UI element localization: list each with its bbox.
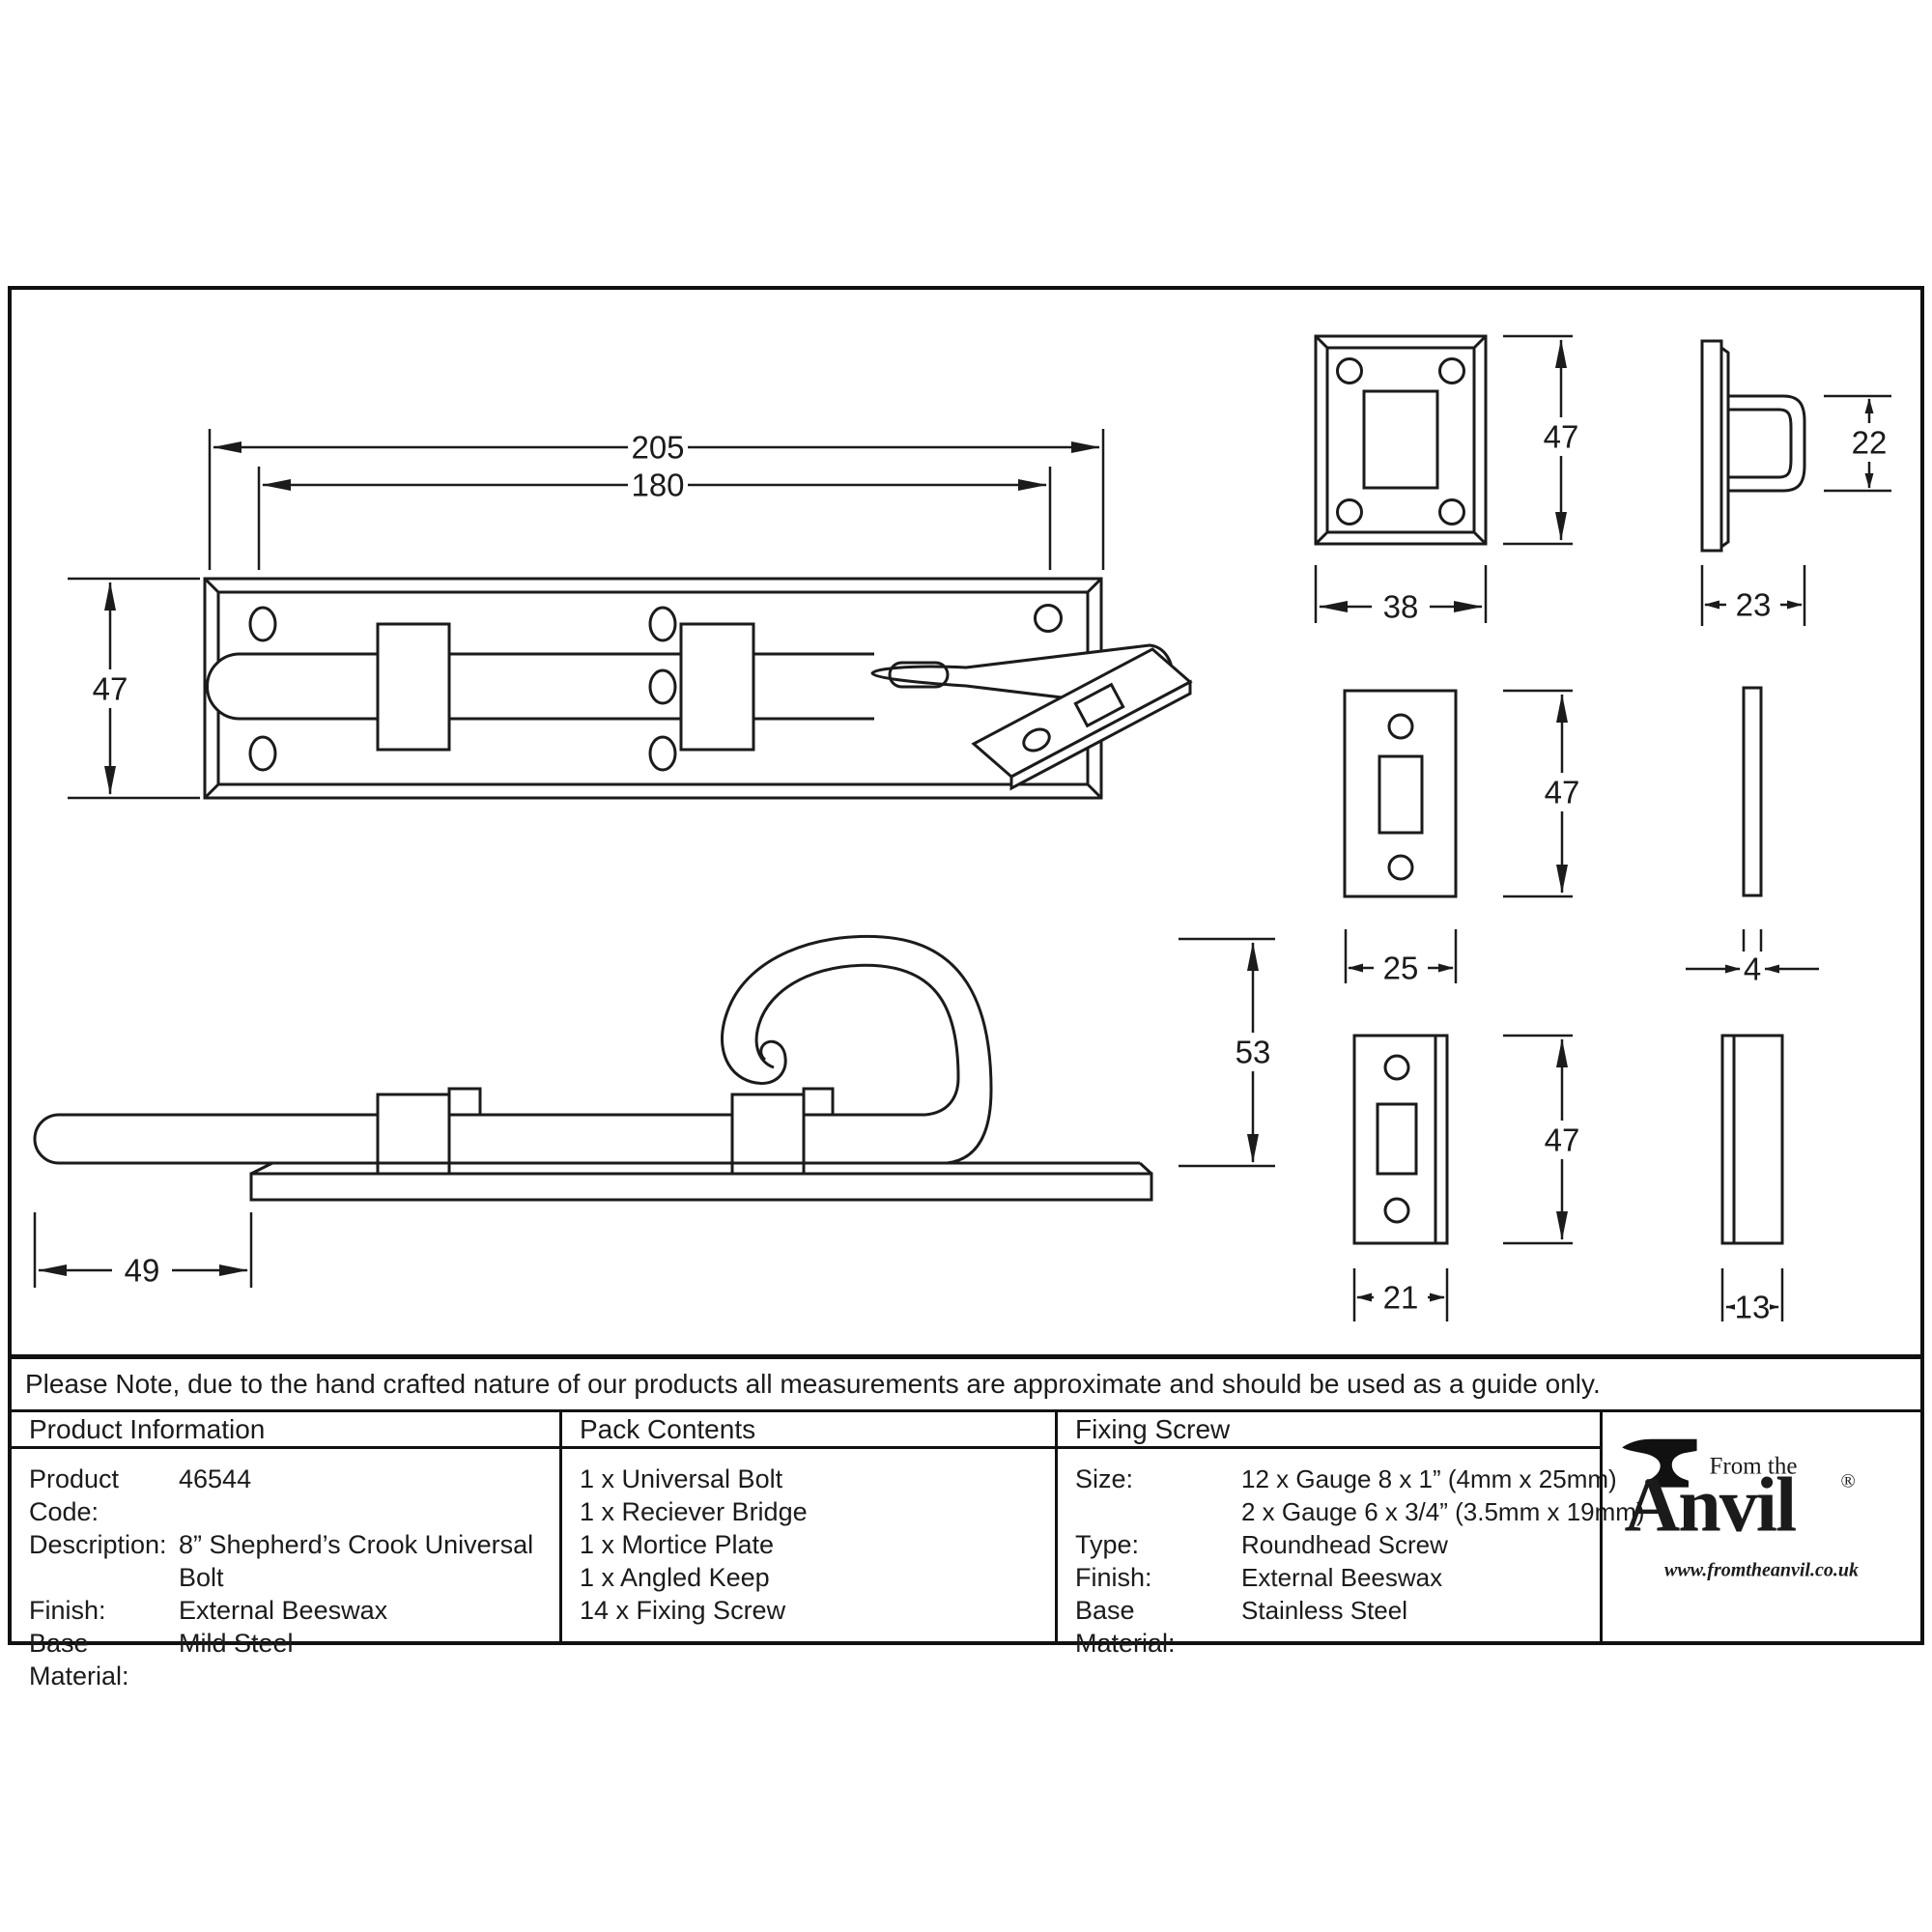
measurement-note: Please Note, due to the hand crafted nat… — [25, 1369, 1601, 1400]
row-label: Product Code: — [29, 1463, 179, 1528]
dim-bridge-width: 38 — [1316, 565, 1486, 625]
dim-keep-height: 47 — [1503, 1036, 1579, 1243]
dim-label: 4 — [1744, 952, 1761, 987]
row-label: Base Material: — [29, 1627, 179, 1692]
row-value: 2 x Gauge 6 x 3/4” (3.5mm x 19mm) — [1241, 1495, 1645, 1528]
screw-hole — [650, 608, 675, 640]
row-label: Base Material: — [1075, 1594, 1241, 1660]
dim-plan-height: 47 — [68, 579, 200, 798]
dim-side-tail: 49 — [35, 1212, 251, 1289]
table-row: Description: 8” Shepherd’s Crook Univers… — [29, 1528, 554, 1594]
dim-label: 47 — [1544, 419, 1579, 455]
row-value: External Beeswax — [179, 1594, 554, 1627]
dim-label: 22 — [1852, 425, 1888, 461]
row-value: Roundhead Screw — [1241, 1528, 1448, 1561]
dim-keep-width: 21 — [1354, 1268, 1447, 1321]
fixing-screw-column: Fixing Screw Size: 12 x Gauge 8 x 1” (4m… — [1055, 1412, 1600, 1641]
dim-label: 23 — [1736, 587, 1772, 623]
baseplate-front — [251, 1174, 1151, 1200]
dim-bridge-loop-height: 22 — [1824, 396, 1891, 491]
mortice-slot — [1379, 756, 1422, 833]
dim-label: 49 — [125, 1253, 160, 1289]
measurement-note-row: Please Note, due to the hand crafted nat… — [12, 1354, 1920, 1412]
brand-column: From the Anvil ® www.fromtheanvil.co.uk — [1600, 1412, 1920, 1641]
receiver-bridge-front-view — [1316, 336, 1486, 544]
screw-hole — [1389, 856, 1412, 879]
dim-label: 53 — [1236, 1035, 1271, 1070]
info-table: Product Information Product Code: 46544 … — [12, 1412, 1920, 1641]
screw-hole — [1036, 606, 1062, 632]
logo-url: www.fromtheanvil.co.uk — [1617, 1559, 1907, 1581]
dim-bridge-depth: 23 — [1702, 565, 1804, 626]
dim-label: 205 — [631, 430, 684, 466]
dim-mortice-thickness: 4 — [1686, 929, 1819, 987]
pack-item: 1 x Reciever Bridge — [580, 1495, 1049, 1528]
screw-hole — [1385, 1056, 1408, 1079]
dim-plan-inner: 180 — [259, 467, 1050, 570]
table-row: Size: 12 x Gauge 8 x 1” (4mm x 25mm) — [1075, 1463, 1594, 1495]
pack-item: 1 x Angled Keep — [580, 1561, 1049, 1594]
table-row: Finish: External Beeswax — [29, 1594, 554, 1627]
screw-hole — [650, 670, 675, 703]
dim-crook-height: 53 — [1179, 939, 1275, 1166]
screw-hole — [1338, 500, 1362, 525]
bolt-rod — [208, 654, 875, 719]
logo-name: Anvil — [1625, 1466, 1796, 1544]
dim-keep-thickness: 13 — [1722, 1268, 1782, 1325]
row-value: External Beeswax — [1241, 1561, 1442, 1594]
table-row: 2 x Gauge 6 x 3/4” (3.5mm x 19mm) — [1075, 1495, 1594, 1528]
bolt-rod-side — [35, 1115, 947, 1163]
universal-bolt-side-view — [35, 936, 1151, 1200]
dim-label: 13 — [1735, 1290, 1771, 1325]
product-information-header: Product Information — [12, 1412, 559, 1449]
fixing-screw-header: Fixing Screw — [1058, 1412, 1600, 1449]
dim-bridge-height: 47 — [1503, 336, 1578, 544]
dim-label: 47 — [93, 671, 128, 707]
row-value: Stainless Steel — [1241, 1594, 1407, 1627]
bridge-opening — [1364, 391, 1437, 488]
row-value: 12 x Gauge 8 x 1” (4mm x 25mm) — [1241, 1463, 1617, 1495]
dim-label: 47 — [1545, 775, 1580, 810]
pack-item: 1 x Mortice Plate — [580, 1528, 1049, 1561]
screw-hole — [250, 608, 275, 640]
table-row: Base Material: Mild Steel — [29, 1627, 554, 1692]
dim-mortice-height: 47 — [1503, 691, 1579, 896]
receiver-bridge-side-view — [1702, 341, 1804, 551]
row-value: 46544 — [179, 1463, 554, 1495]
screw-hole — [1385, 1199, 1408, 1222]
row-label: Size: — [1075, 1463, 1241, 1495]
bridge-staple-inner — [1728, 410, 1791, 477]
row-label: Finish: — [1075, 1561, 1241, 1594]
angled-keep-front-view — [1354, 1036, 1447, 1243]
dim-label: 25 — [1383, 951, 1419, 986]
product-information-column: Product Information Product Code: 46544 … — [12, 1412, 559, 1641]
row-label: Type: — [1075, 1528, 1241, 1561]
screw-hole — [1389, 715, 1412, 738]
rod-guide-bracket — [681, 624, 753, 750]
table-row: Base Material: Stainless Steel — [1075, 1594, 1594, 1660]
registered-mark: ® — [1841, 1470, 1856, 1492]
pack-contents-header: Pack Contents — [562, 1412, 1055, 1449]
screw-hole — [250, 737, 275, 770]
product-spec-sheet: 205 180 47 — [0, 0, 1932, 1932]
technical-drawing: 205 180 47 — [12, 290, 1920, 1354]
rod-guide-bracket — [378, 624, 449, 750]
dim-label: 21 — [1383, 1280, 1419, 1316]
mortice-plate-front-view — [1345, 691, 1456, 896]
dim-mortice-width: 25 — [1346, 929, 1456, 986]
mortice-plate-side-view — [1744, 688, 1761, 895]
row-value: 8” Shepherd’s Crook Universal Bolt — [179, 1528, 554, 1594]
shepherds-crook-inner — [756, 965, 958, 1115]
table-row: Type: Roundhead Screw — [1075, 1528, 1594, 1561]
dim-label: 47 — [1545, 1122, 1580, 1158]
row-label: Finish: — [29, 1594, 179, 1627]
pack-contents-column: Pack Contents 1 x Universal Bolt 1 x Rec… — [559, 1412, 1055, 1641]
table-row: Product Code: 46544 — [29, 1463, 554, 1528]
pack-item: 1 x Universal Bolt — [580, 1463, 1049, 1495]
drawing-frame: 205 180 47 — [8, 286, 1924, 1645]
row-value: Mild Steel — [179, 1627, 554, 1660]
dim-label: 38 — [1383, 589, 1419, 625]
row-label: Description: — [29, 1528, 179, 1561]
screw-hole — [650, 737, 675, 770]
from-the-anvil-logo: From the Anvil ® www.fromtheanvil.co.uk — [1603, 1412, 1920, 1641]
angled-keep-side-view — [1722, 1036, 1782, 1243]
table-row: Finish: External Beeswax — [1075, 1561, 1594, 1594]
screw-hole — [1440, 500, 1464, 525]
pack-item: 14 x Fixing Screw — [580, 1594, 1049, 1627]
dim-label: 180 — [631, 468, 684, 503]
keep-slot — [1378, 1104, 1416, 1174]
screw-hole — [1440, 359, 1464, 384]
screw-hole — [1338, 359, 1362, 384]
